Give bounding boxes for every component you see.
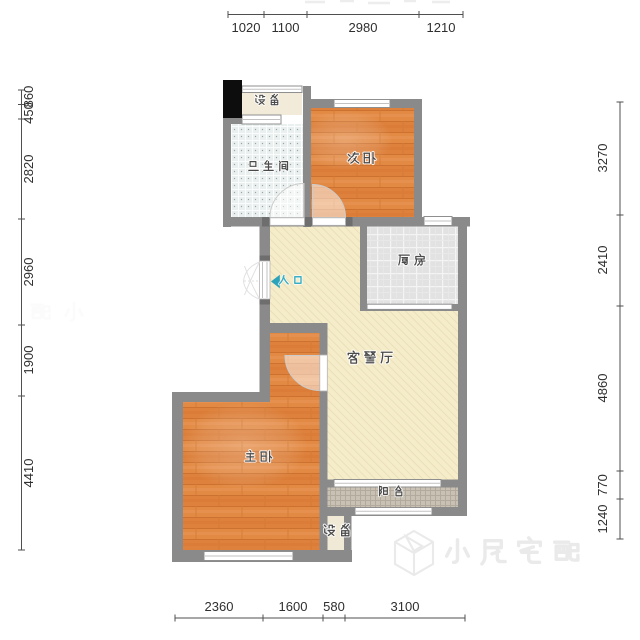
svg-text:2980: 2980 — [349, 20, 378, 35]
svg-text:770: 770 — [595, 474, 610, 496]
svg-text:4410: 4410 — [21, 459, 36, 488]
svg-text:3100: 3100 — [391, 599, 420, 614]
svg-text:1100: 1100 — [272, 20, 300, 35]
svg-text:1240: 1240 — [595, 505, 610, 534]
svg-text:1900: 1900 — [21, 346, 36, 375]
svg-text:450: 450 — [21, 102, 36, 124]
svg-text:2360: 2360 — [205, 599, 234, 614]
svg-text:3270: 3270 — [595, 144, 610, 173]
svg-text:4860: 4860 — [595, 374, 610, 403]
svg-text:1020: 1020 — [232, 20, 261, 35]
svg-text:1210: 1210 — [427, 20, 456, 35]
svg-text:2820: 2820 — [21, 155, 36, 184]
svg-text:1600: 1600 — [279, 599, 308, 614]
svg-text:2960: 2960 — [21, 258, 36, 287]
svg-text:580: 580 — [323, 599, 345, 614]
svg-text:2410: 2410 — [595, 246, 610, 275]
